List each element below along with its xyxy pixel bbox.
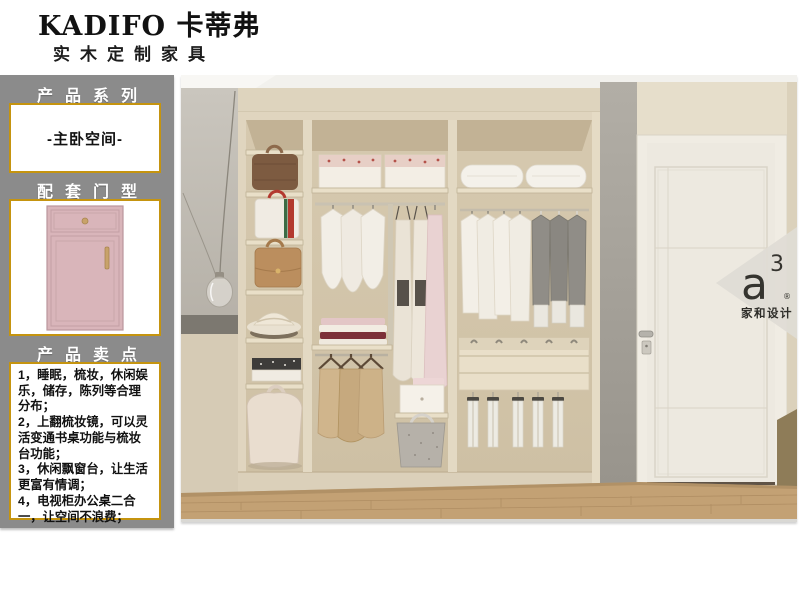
white-blouses bbox=[321, 205, 385, 292]
selling-point-4: 4，电视柜办公桌二合一，让空间不浪费； bbox=[18, 494, 152, 525]
side-panel bbox=[592, 112, 600, 492]
watermark-logo: a bbox=[741, 259, 768, 310]
divider-left bbox=[303, 120, 312, 472]
brand-title: KADIFO 卡蒂弗 bbox=[38, 4, 260, 43]
series-value-box: -主卧空间- bbox=[9, 103, 161, 173]
showroom-photo: a 3 ® 家和设计 bbox=[181, 75, 797, 522]
watermark-logo-sup: 3 bbox=[770, 252, 784, 277]
rod-center-post bbox=[388, 204, 393, 345]
sidebar: 产品系列 -主卧空间- 配套门型 产品卖点 1，睡眠，梳妆，休闲娱乐，储存，陈列… bbox=[0, 75, 174, 528]
drawer-knob-icon bbox=[82, 218, 88, 224]
door-handle-icon bbox=[105, 247, 109, 269]
wardrobe-crown bbox=[238, 88, 600, 112]
drawer-unit bbox=[459, 338, 589, 390]
dark-skirting bbox=[777, 409, 797, 487]
interior-top-shadow bbox=[246, 120, 592, 151]
wardrobe bbox=[238, 88, 600, 492]
cream-tote-bag bbox=[247, 387, 302, 471]
door-type-box bbox=[9, 199, 161, 336]
pink-door-illustration bbox=[46, 205, 124, 331]
watermark-registered: ® bbox=[783, 292, 791, 301]
watermark-caption: 家和设计 bbox=[741, 306, 793, 320]
white-shirts bbox=[461, 211, 531, 321]
selling-points-box: 1，睡眠，梳妆，休闲娱乐，储存，陈列等合理分布； 2，上翻梳妆镜，可以灵活变通书… bbox=[9, 362, 161, 520]
door-header-wall bbox=[637, 82, 797, 140]
tan-garments bbox=[318, 369, 384, 442]
selling-point-2: 2，上翻梳妆镜，可以灵活变通书桌功能与梳妆台功能； bbox=[18, 415, 152, 462]
selling-point-3: 3，休闲飘窗台，让生活更富有情调； bbox=[18, 462, 152, 493]
door-panel bbox=[51, 236, 119, 326]
selling-point-1: 1，睡眠，梳妆，休闲娱乐，储存，陈列等合理分布； bbox=[18, 368, 152, 415]
divider-right bbox=[448, 120, 457, 472]
folded-clothes-stack bbox=[252, 358, 301, 381]
door-drawer bbox=[51, 210, 119, 232]
brand-subtitle: 实木定制家具 bbox=[53, 40, 215, 65]
gray-suits bbox=[532, 211, 586, 327]
gray-wall-strip bbox=[600, 82, 639, 486]
series-value: -主卧空间- bbox=[47, 128, 123, 149]
showroom-scene: a 3 ® 家和设计 bbox=[181, 75, 797, 522]
folded-clothes-middle bbox=[319, 318, 387, 345]
